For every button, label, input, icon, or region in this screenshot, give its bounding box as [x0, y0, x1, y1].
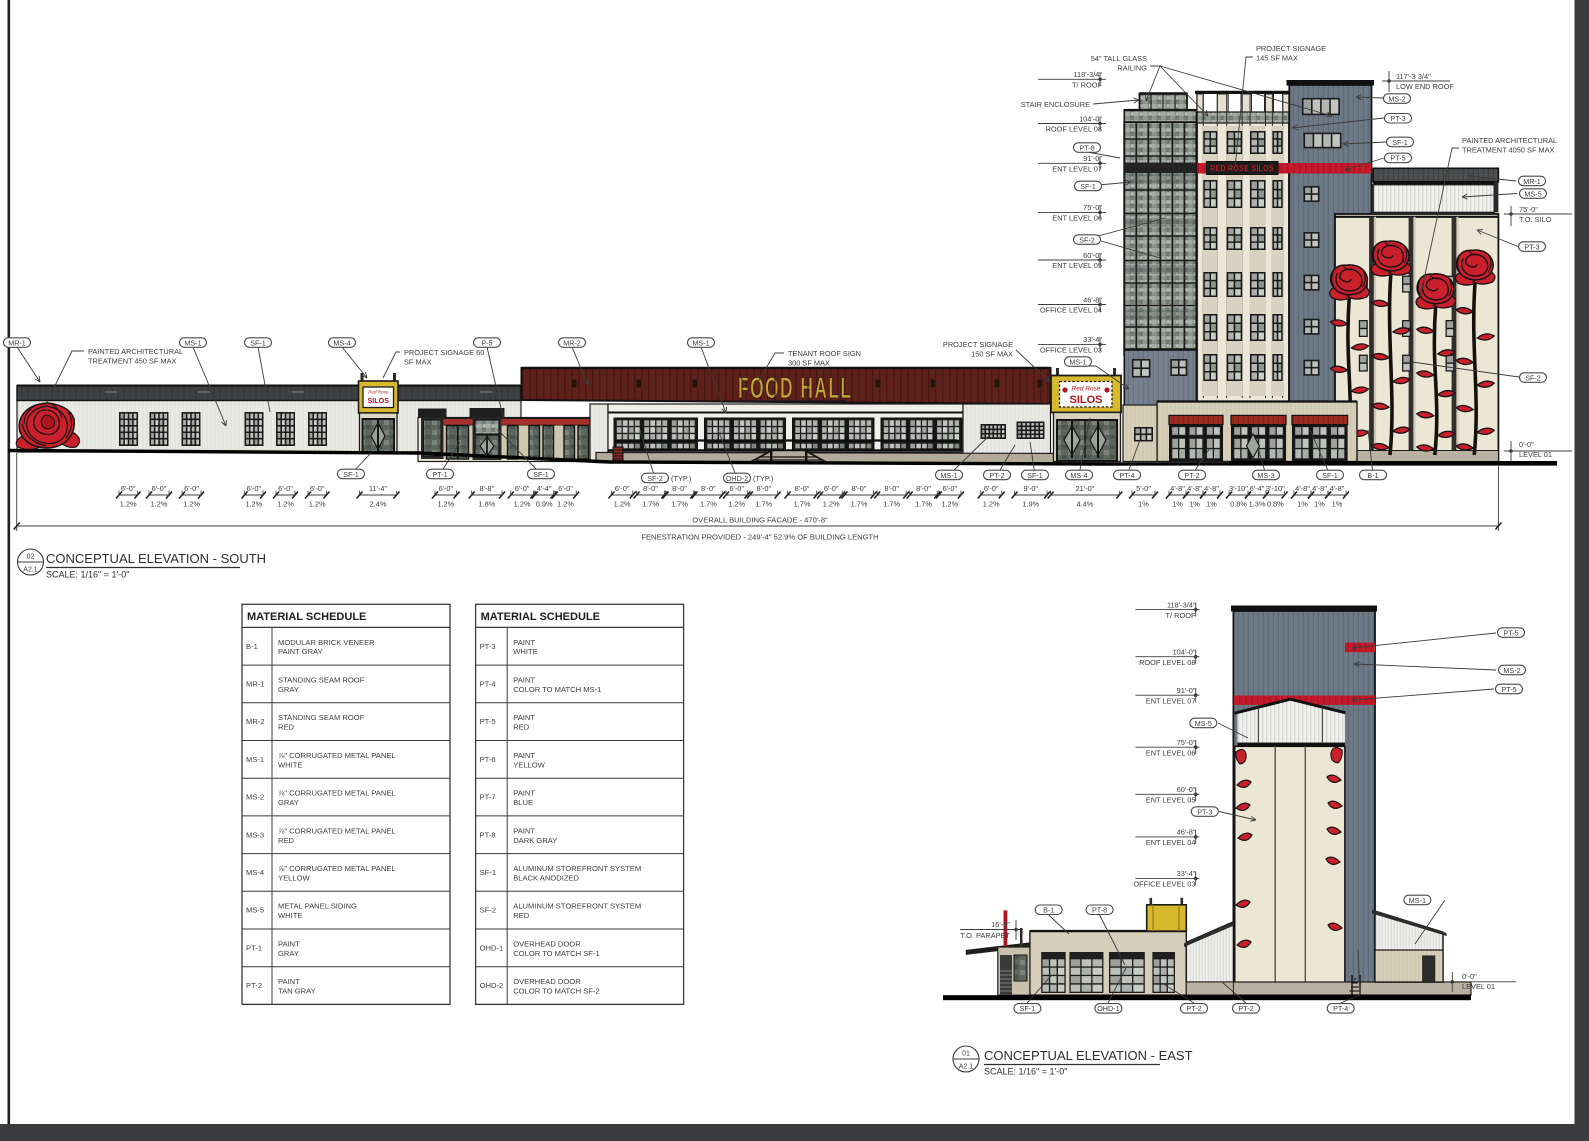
svg-text:A2.1: A2.1 — [23, 567, 38, 574]
svg-text:ENT LEVEL 07: ENT LEVEL 07 — [1146, 696, 1196, 705]
svg-text:PROJECT SIGNAGE: PROJECT SIGNAGE — [1256, 44, 1326, 53]
svg-text:4'-8": 4'-8" — [1187, 484, 1202, 493]
svg-text:4'-8": 4'-8" — [1204, 484, 1219, 493]
svg-text:MR-1: MR-1 — [1523, 177, 1541, 186]
svg-text:0'-0": 0'-0" — [1519, 440, 1534, 449]
svg-text:3'-10": 3'-10" — [1266, 484, 1285, 493]
svg-text:6'-0": 6'-0" — [121, 484, 136, 493]
svg-text:6'-0": 6'-0" — [438, 484, 453, 493]
svg-text:WHITE: WHITE — [278, 911, 302, 920]
svg-text:PT-2: PT-2 — [246, 981, 262, 990]
svg-text:150 SF MAX: 150 SF MAX — [971, 350, 1013, 359]
svg-text:0'-0": 0'-0" — [1462, 972, 1477, 981]
svg-text:6'-0": 6'-0" — [942, 484, 957, 493]
svg-text:PT-5: PT-5 — [1390, 154, 1405, 163]
svg-text:MS-1: MS-1 — [246, 755, 264, 764]
svg-text:1.7%: 1.7% — [794, 500, 811, 509]
svg-text:MR-2: MR-2 — [563, 338, 581, 347]
svg-text:OVERHEAD DOOR: OVERHEAD DOOR — [513, 977, 581, 986]
svg-text:4'-8": 4'-8" — [1170, 484, 1185, 493]
svg-text:PAINTED ARCHITECTURAL: PAINTED ARCHITECTURAL — [88, 347, 183, 356]
svg-text:6'-0": 6'-0" — [515, 484, 530, 493]
svg-text:PAINT: PAINT — [278, 977, 300, 986]
svg-text:Red Rose: Red Rose — [1072, 386, 1101, 393]
svg-text:OFFICE LEVEL 03: OFFICE LEVEL 03 — [1040, 346, 1102, 355]
svg-text:RED ROSE SILOS: RED ROSE SILOS — [1210, 163, 1274, 173]
svg-text:1.7%: 1.7% — [851, 500, 868, 509]
svg-text:1.2%: 1.2% — [245, 500, 262, 509]
svg-text:75'-0": 75'-0" — [1177, 738, 1196, 747]
svg-text:6'-0": 6'-0" — [278, 484, 293, 493]
svg-text:0.8%: 0.8% — [1267, 500, 1284, 509]
svg-text:GRAY: GRAY — [278, 685, 299, 694]
svg-text:ALUMINUM STOREFRONT SYSTEM: ALUMINUM STOREFRONT SYSTEM — [513, 902, 641, 911]
svg-text:STAIR ENCLOSURE: STAIR ENCLOSURE — [1021, 100, 1090, 109]
svg-text:1.2%: 1.2% — [728, 500, 745, 509]
svg-text:OHD-1: OHD-1 — [1097, 1004, 1119, 1013]
svg-text:3'-10": 3'-10" — [1229, 484, 1248, 493]
svg-text:⅞" CORRUGATED METAL PANEL: ⅞" CORRUGATED METAL PANEL — [278, 751, 396, 760]
svg-text:1.2%: 1.2% — [557, 500, 574, 509]
svg-text:1.7%: 1.7% — [883, 500, 900, 509]
svg-text:4'-8": 4'-8" — [1295, 484, 1310, 493]
svg-text:6'-0": 6'-0" — [246, 484, 261, 493]
svg-text:PAINT: PAINT — [513, 789, 535, 798]
svg-text:1.3%: 1.3% — [1249, 500, 1266, 509]
svg-text:PT-5: PT-5 — [480, 717, 496, 726]
svg-text:8'-0": 8'-0" — [643, 484, 658, 493]
svg-text:DARK GRAY: DARK GRAY — [513, 836, 557, 845]
svg-text:SF-1: SF-1 — [480, 868, 496, 877]
svg-text:PT-2: PT-2 — [1186, 1004, 1201, 1013]
svg-text:BLUE: BLUE — [513, 798, 533, 807]
svg-text:0.8%: 0.8% — [1230, 500, 1247, 509]
svg-text:1.2%: 1.2% — [151, 500, 168, 509]
svg-text:PT-3: PT-3 — [1197, 807, 1212, 816]
svg-text:PT-2: PT-2 — [1184, 471, 1199, 480]
svg-text:60'-0": 60'-0" — [1177, 785, 1196, 794]
svg-text:OHD-2: OHD-2 — [480, 981, 504, 990]
svg-text:1.2%: 1.2% — [183, 500, 200, 509]
svg-text:STANDING SEAM ROOF: STANDING SEAM ROOF — [278, 676, 365, 685]
svg-text:PT-4: PT-4 — [480, 680, 496, 689]
svg-text:1%: 1% — [1297, 500, 1308, 509]
svg-text:SF-1: SF-1 — [1027, 471, 1043, 480]
svg-text:75'-0": 75'-0" — [1519, 205, 1538, 214]
svg-text:⅞" CORRUGATED METAL PANEL: ⅞" CORRUGATED METAL PANEL — [278, 864, 396, 873]
svg-text:MR-1: MR-1 — [246, 680, 265, 689]
svg-text:1%: 1% — [1138, 500, 1149, 509]
svg-text:WHITE: WHITE — [513, 647, 537, 656]
svg-text:8'-0": 8'-0" — [852, 484, 867, 493]
svg-text:PT-3: PT-3 — [480, 642, 496, 651]
svg-text:MODULAR BRICK VENEER: MODULAR BRICK VENEER — [278, 638, 375, 647]
svg-text:PT-4: PT-4 — [1119, 471, 1134, 480]
svg-text:11'-4": 11'-4" — [369, 484, 388, 493]
svg-text:6'-0": 6'-0" — [310, 484, 325, 493]
svg-text:T/ ROOF: T/ ROOF — [1166, 611, 1196, 620]
svg-text:MR-2: MR-2 — [246, 717, 265, 726]
svg-text:ROOF LEVEL 08: ROOF LEVEL 08 — [1139, 658, 1195, 667]
svg-text:16'-8": 16'-8" — [991, 920, 1010, 929]
svg-text:MS-5: MS-5 — [246, 906, 264, 915]
svg-text:PT-2: PT-2 — [989, 471, 1004, 480]
svg-text:SILOS: SILOS — [1069, 394, 1102, 406]
svg-text:8'-0": 8'-0" — [795, 484, 810, 493]
svg-text:RED: RED — [278, 836, 295, 845]
svg-text:FENESTRATION PROVIDED - 249'-4: FENESTRATION PROVIDED - 249'-4" 52.9% OF… — [641, 533, 878, 542]
svg-text:PT-7: PT-7 — [480, 793, 496, 802]
svg-text:6'-0": 6'-0" — [152, 484, 167, 493]
svg-text:91'-0": 91'-0" — [1177, 686, 1196, 695]
svg-text:YELLOW: YELLOW — [278, 874, 310, 883]
svg-text:T/ ROOF: T/ ROOF — [1072, 81, 1102, 90]
svg-text:8'-0": 8'-0" — [884, 484, 899, 493]
svg-text:T.O. SILO: T.O. SILO — [1519, 215, 1552, 224]
svg-text:MS-4: MS-4 — [246, 868, 264, 877]
svg-text:MS-3: MS-3 — [1257, 471, 1274, 480]
svg-text:TREATMENT 4050 SF MAX: TREATMENT 4050 SF MAX — [1462, 146, 1555, 155]
svg-text:PT-3: PT-3 — [1390, 114, 1405, 123]
svg-text:117'-3 3/4": 117'-3 3/4" — [1396, 72, 1431, 81]
svg-text:SILOS: SILOS — [368, 396, 390, 405]
svg-text:PT-8: PT-8 — [480, 830, 496, 839]
svg-text:TENANT ROOF SIGN: TENANT ROOF SIGN — [788, 349, 861, 358]
svg-text:MATERIAL SCHEDULE: MATERIAL SCHEDULE — [247, 611, 366, 623]
svg-text:WHITE: WHITE — [278, 760, 302, 769]
svg-text:1%: 1% — [1332, 500, 1343, 509]
svg-text:OVERALL BUILDING FACADE - 470': OVERALL BUILDING FACADE - 470'-8" — [692, 516, 828, 525]
svg-text:1%: 1% — [1314, 500, 1325, 509]
svg-text:MS-1: MS-1 — [940, 471, 957, 480]
svg-text:MS-4: MS-4 — [333, 338, 350, 347]
svg-text:PT-2: PT-2 — [1238, 1004, 1253, 1013]
svg-text:54" TALL GLASS: 54" TALL GLASS — [1091, 54, 1147, 63]
svg-text:T.O. PARAPET: T.O. PARAPET — [960, 931, 1010, 940]
svg-text:1.7%: 1.7% — [671, 500, 688, 509]
svg-text:PAINT: PAINT — [513, 826, 535, 835]
svg-text:PT-8: PT-8 — [1092, 906, 1107, 915]
svg-text:OVERHEAD DOOR: OVERHEAD DOOR — [513, 939, 581, 948]
svg-text:118'-3/4": 118'-3/4" — [1167, 600, 1196, 609]
svg-text:LOW END ROOF: LOW END ROOF — [1396, 82, 1454, 91]
svg-text:ENT LEVEL 05: ENT LEVEL 05 — [1052, 261, 1102, 270]
svg-text:B-1: B-1 — [1043, 906, 1054, 915]
svg-text:1.2%: 1.2% — [277, 500, 294, 509]
svg-text:MS-4: MS-4 — [1070, 471, 1087, 480]
svg-text:OFFICE LEVEL 04: OFFICE LEVEL 04 — [1040, 306, 1102, 315]
svg-text:MATERIAL SCHEDULE: MATERIAL SCHEDULE — [481, 611, 600, 623]
svg-text:MS-3: MS-3 — [246, 830, 264, 839]
svg-text:⅞" CORRUGATED METAL PANEL: ⅞" CORRUGATED METAL PANEL — [278, 826, 396, 835]
svg-text:1.2%: 1.2% — [614, 500, 631, 509]
svg-text:GRAY: GRAY — [278, 949, 299, 958]
svg-text:CONCEPTUAL ELEVATION - SOUTH: CONCEPTUAL ELEVATION - SOUTH — [46, 551, 266, 566]
svg-text:P-5: P-5 — [481, 338, 492, 347]
svg-text:YELLOW: YELLOW — [513, 760, 545, 769]
svg-text:ALUMINUM STOREFRONT SYSTEM: ALUMINUM STOREFRONT SYSTEM — [513, 864, 641, 873]
svg-text:MS-5: MS-5 — [1524, 189, 1541, 198]
svg-text:COLOR TO MATCH SF-1: COLOR TO MATCH SF-1 — [513, 949, 600, 958]
svg-text:145 SF MAX: 145 SF MAX — [1256, 54, 1298, 63]
svg-text:21'-0": 21'-0" — [1075, 484, 1094, 493]
svg-text:COLOR TO MATCH MS-1: COLOR TO MATCH MS-1 — [513, 685, 601, 694]
svg-text:ENT LEVEL 06: ENT LEVEL 06 — [1146, 748, 1196, 757]
svg-text:TAN GRAY: TAN GRAY — [278, 987, 316, 996]
svg-text:PAINT: PAINT — [513, 676, 535, 685]
svg-text:104'-0": 104'-0" — [1173, 648, 1196, 657]
svg-text:118'-3/4": 118'-3/4" — [1073, 70, 1102, 79]
svg-text:SF-1: SF-1 — [1392, 138, 1408, 147]
svg-text:(TYP.): (TYP.) — [671, 474, 691, 483]
svg-text:MS-1: MS-1 — [1069, 357, 1086, 366]
svg-text:1.2%: 1.2% — [437, 500, 454, 509]
svg-text:8'-8": 8'-8" — [480, 484, 495, 493]
svg-text:1.2%: 1.2% — [514, 500, 531, 509]
svg-text:MS-1: MS-1 — [184, 338, 201, 347]
svg-text:SF-1: SF-1 — [533, 470, 549, 479]
svg-text:6'-0": 6'-0" — [984, 484, 999, 493]
svg-text:300 SF MAX: 300 SF MAX — [788, 359, 830, 368]
svg-text:4'-8": 4'-8" — [1312, 484, 1327, 493]
svg-text:(TYP.): (TYP.) — [753, 474, 773, 483]
svg-text:8'-0": 8'-0" — [916, 484, 931, 493]
svg-text:OHD-2: OHD-2 — [726, 474, 748, 483]
svg-text:MS-1: MS-1 — [692, 338, 709, 347]
svg-text:ROOF LEVEL 08: ROOF LEVEL 08 — [1046, 125, 1102, 134]
svg-text:01: 01 — [962, 1051, 970, 1058]
svg-text:4.4%: 4.4% — [1076, 500, 1093, 509]
svg-text:Red Rose: Red Rose — [368, 390, 389, 395]
svg-text:PAINT: PAINT — [513, 751, 535, 760]
svg-text:PAINT GRAY: PAINT GRAY — [278, 647, 323, 656]
svg-text:8'-0": 8'-0" — [672, 484, 687, 493]
svg-text:1.7%: 1.7% — [700, 500, 717, 509]
svg-text:8'-0": 8'-0" — [756, 484, 771, 493]
svg-text:1.2%: 1.2% — [941, 500, 958, 509]
svg-text:STANDING SEAM ROOF: STANDING SEAM ROOF — [278, 713, 365, 722]
svg-text:1.9%: 1.9% — [1022, 500, 1039, 509]
svg-text:1.2%: 1.2% — [120, 500, 137, 509]
svg-text:PROJECT SIGNAGE 60: PROJECT SIGNAGE 60 — [404, 348, 484, 357]
svg-text:4'-8": 4'-8" — [1330, 484, 1345, 493]
svg-text:1.8%: 1.8% — [478, 500, 495, 509]
svg-text:B-1: B-1 — [1367, 471, 1378, 480]
svg-text:104'-0": 104'-0" — [1079, 114, 1102, 123]
svg-text:MS-2: MS-2 — [246, 793, 264, 802]
svg-text:9'-0": 9'-0" — [1023, 484, 1038, 493]
svg-text:⅞" CORRUGATED METAL PANEL: ⅞" CORRUGATED METAL PANEL — [278, 789, 396, 798]
svg-text:SF-1: SF-1 — [1322, 471, 1338, 480]
svg-text:TREATMENT 450 SF MAX: TREATMENT 450 SF MAX — [88, 357, 177, 366]
svg-text:MS-1: MS-1 — [1409, 896, 1426, 905]
svg-text:1%: 1% — [1172, 500, 1183, 509]
svg-text:5'-0": 5'-0" — [1136, 484, 1151, 493]
svg-text:METAL PANEL SIDING: METAL PANEL SIDING — [278, 902, 357, 911]
svg-text:SF MAX: SF MAX — [404, 358, 432, 367]
svg-text:1.2%: 1.2% — [309, 500, 326, 509]
svg-text:1.2%: 1.2% — [983, 500, 1000, 509]
svg-text:COLOR TO MATCH SF-2: COLOR TO MATCH SF-2 — [513, 987, 600, 996]
svg-text:MS-2: MS-2 — [1503, 666, 1520, 675]
svg-text:OHD-1: OHD-1 — [480, 943, 504, 952]
svg-text:PAINT: PAINT — [513, 713, 535, 722]
svg-text:02: 02 — [27, 554, 35, 561]
svg-text:1%: 1% — [1189, 500, 1200, 509]
svg-text:SCALE: 1/16" = 1'-0": SCALE: 1/16" = 1'-0" — [984, 1067, 1067, 1077]
svg-text:1.7%: 1.7% — [915, 500, 932, 509]
svg-text:SF-1: SF-1 — [343, 470, 359, 479]
svg-text:PAINT: PAINT — [278, 939, 300, 948]
svg-text:6'-0": 6'-0" — [824, 484, 839, 493]
svg-text:PT-5: PT-5 — [1503, 628, 1518, 637]
svg-text:SF-1: SF-1 — [1020, 1004, 1036, 1013]
svg-text:ENT LEVEL 07: ENT LEVEL 07 — [1052, 165, 1102, 174]
svg-text:6'-0": 6'-0" — [558, 484, 573, 493]
svg-text:SF-2: SF-2 — [480, 906, 496, 915]
svg-text:BLACK ANODIZED: BLACK ANODIZED — [513, 874, 579, 883]
svg-text:0.9%: 0.9% — [536, 500, 553, 509]
svg-text:PT-3: PT-3 — [1524, 242, 1539, 251]
svg-text:LEVEL 01: LEVEL 01 — [1462, 982, 1495, 991]
svg-text:ENT LEVEL 04: ENT LEVEL 04 — [1146, 838, 1196, 847]
svg-text:SF-2: SF-2 — [1525, 373, 1541, 382]
svg-text:PT-8: PT-8 — [1079, 143, 1094, 152]
svg-text:8'-0": 8'-0" — [701, 484, 716, 493]
svg-text:ENT LEVEL 06: ENT LEVEL 06 — [1052, 214, 1102, 223]
svg-text:RED: RED — [513, 723, 530, 732]
svg-text:PAINTED ARCHITECTURAL: PAINTED ARCHITECTURAL — [1462, 136, 1557, 145]
svg-text:A2.1: A2.1 — [959, 1064, 974, 1071]
svg-text:33'-4": 33'-4" — [1177, 869, 1196, 878]
svg-text:6'-0": 6'-0" — [615, 484, 630, 493]
svg-text:OFFICE LEVEL 03: OFFICE LEVEL 03 — [1133, 880, 1195, 889]
svg-text:SF-1: SF-1 — [1080, 182, 1096, 191]
svg-text:1.2%: 1.2% — [823, 500, 840, 509]
svg-text:MS-2: MS-2 — [1388, 94, 1405, 103]
svg-text:RAILING: RAILING — [1117, 64, 1147, 73]
svg-text:PAINT: PAINT — [513, 638, 535, 647]
svg-text:MR-1: MR-1 — [8, 338, 26, 347]
svg-text:SF-2: SF-2 — [1079, 235, 1095, 244]
svg-text:PT-1: PT-1 — [432, 470, 447, 479]
svg-text:ENT LEVEL 05: ENT LEVEL 05 — [1146, 796, 1196, 805]
svg-text:PROJECT SIGNAGE: PROJECT SIGNAGE — [943, 340, 1013, 349]
svg-text:SF-1: SF-1 — [250, 338, 266, 347]
svg-text:4'-4": 4'-4" — [537, 484, 552, 493]
svg-text:1%: 1% — [1206, 500, 1217, 509]
svg-text:2.4%: 2.4% — [370, 500, 387, 509]
svg-text:B-1: B-1 — [246, 642, 258, 651]
svg-text:PT-4: PT-4 — [1333, 1004, 1348, 1013]
svg-text:6'-4": 6'-4" — [1250, 484, 1265, 493]
svg-text:1.7%: 1.7% — [642, 500, 659, 509]
svg-text:CONCEPTUAL ELEVATION - EAST: CONCEPTUAL ELEVATION - EAST — [984, 1048, 1193, 1063]
svg-text:SF-2: SF-2 — [647, 474, 663, 483]
svg-text:PT-5: PT-5 — [1501, 685, 1516, 694]
svg-text:GRAY: GRAY — [278, 798, 299, 807]
svg-text:MS-5: MS-5 — [1195, 719, 1212, 728]
svg-text:1.7%: 1.7% — [755, 500, 772, 509]
svg-text:46'-8": 46'-8" — [1177, 828, 1196, 837]
svg-text:6'-0": 6'-0" — [184, 484, 199, 493]
svg-text:SCALE: 1/16" = 1'-0": SCALE: 1/16" = 1'-0" — [46, 570, 129, 580]
svg-text:6'-0": 6'-0" — [729, 484, 744, 493]
svg-text:PT-6: PT-6 — [480, 755, 496, 764]
svg-text:RED: RED — [278, 723, 295, 732]
svg-text:PT-1: PT-1 — [246, 943, 262, 952]
svg-text:RED: RED — [513, 911, 530, 920]
